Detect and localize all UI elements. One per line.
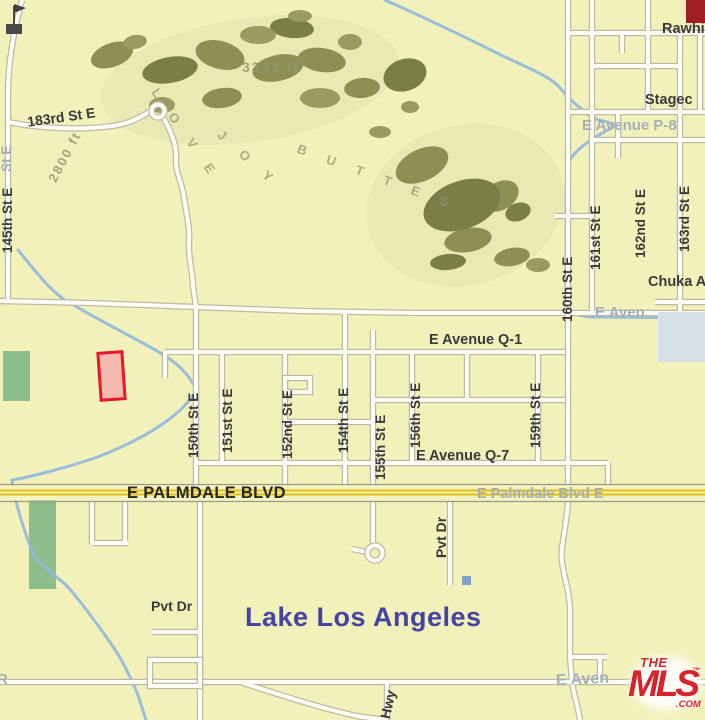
map-canvas[interactable]: L O V E J O Y B U T T E S 3332 ft 2800 f… bbox=[0, 0, 705, 720]
facility-footprint bbox=[658, 312, 705, 362]
street-label-156th: 156th St E bbox=[409, 383, 423, 448]
street-label-155th: 155th St E bbox=[374, 415, 388, 480]
street-label-145th: 145th St E bbox=[1, 188, 15, 253]
street-label-154th: 154th St E bbox=[337, 388, 351, 453]
mls-logo-com: .COM bbox=[676, 699, 701, 710]
flag-icon bbox=[0, 0, 26, 38]
pvt-dr-label-vertical: Pvt Dr bbox=[434, 517, 448, 558]
avenue-ghost-bottom-label: E Aven bbox=[556, 671, 610, 690]
street-label-160th: 160th St E bbox=[561, 257, 575, 322]
avenue-ghost-mid-label: E Aven bbox=[595, 305, 645, 320]
street-label-stagecoach: Stagec bbox=[645, 93, 693, 108]
street-label-150th: 150th St E bbox=[187, 393, 201, 458]
street-label-151st: 151st St E bbox=[221, 388, 235, 453]
palmdale-ghost-label: E Palmdale Blvd E bbox=[477, 487, 604, 502]
elevation-label-3332: 3332 ft bbox=[242, 60, 300, 74]
ghost-r-label: R bbox=[0, 672, 8, 687]
street-label-163rd: 163rd St E bbox=[678, 186, 692, 252]
street-label-ghost-st-e: St E bbox=[0, 146, 14, 172]
mls-logo-tm: ™ bbox=[692, 666, 700, 675]
mls-logo: THE MLS ™ .COM bbox=[624, 652, 705, 714]
street-label-161st: 161st St E bbox=[589, 205, 603, 270]
street-label-162nd: 162nd St E bbox=[634, 189, 648, 258]
avenue-q1-label: E Avenue Q-1 bbox=[429, 333, 522, 348]
pvt-dr-label-horizontal: Pvt Dr bbox=[151, 599, 192, 613]
street-label-rawhide: Rawhi bbox=[662, 22, 705, 37]
street-label-159th: 159th St E bbox=[529, 383, 543, 448]
highlighted-parcel[interactable] bbox=[96, 350, 126, 402]
red-marker-partial bbox=[686, 0, 705, 23]
avenue-p8-ghost-label: E Avenue P-8 bbox=[582, 118, 677, 133]
city-name-label: Lake Los Angeles bbox=[245, 604, 482, 631]
street-label-152nd: 152nd St E bbox=[281, 390, 295, 459]
park-areas bbox=[3, 351, 56, 589]
avenue-q7-label: E Avenue Q-7 bbox=[416, 449, 509, 464]
palmdale-blvd-label: E PALMDALE BLVD bbox=[127, 485, 286, 502]
small-building-marker bbox=[462, 576, 471, 585]
street-label-chuka: Chuka A bbox=[648, 275, 705, 290]
